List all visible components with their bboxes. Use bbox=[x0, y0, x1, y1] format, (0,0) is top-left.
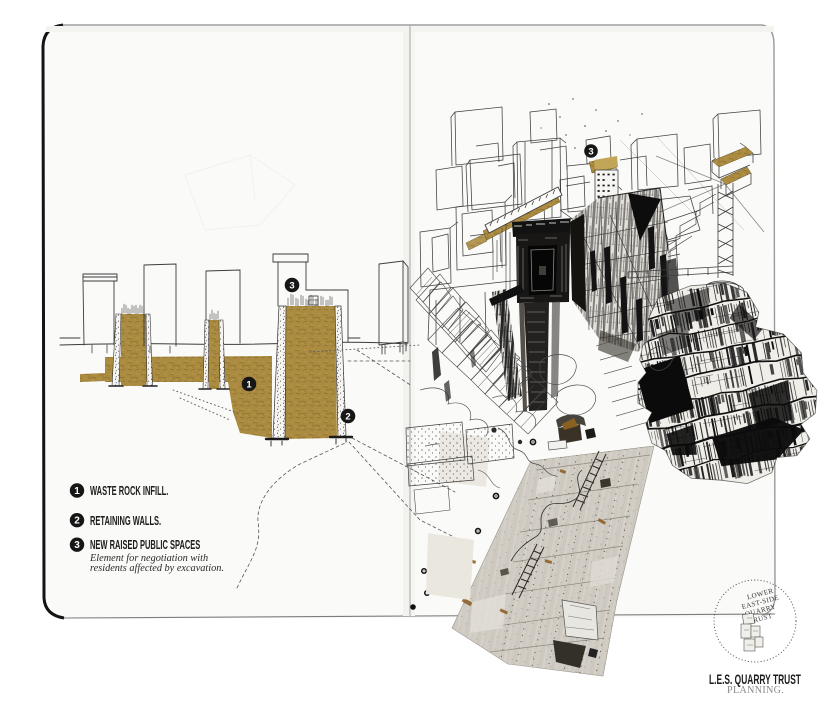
svg-text:3: 3 bbox=[74, 540, 80, 551]
svg-text:3: 3 bbox=[289, 281, 294, 292]
svg-text:1: 1 bbox=[246, 380, 252, 391]
svg-text:3: 3 bbox=[588, 147, 593, 158]
svg-text:2: 2 bbox=[345, 412, 350, 423]
svg-text:2: 2 bbox=[74, 516, 80, 527]
svg-text:1: 1 bbox=[74, 486, 80, 497]
